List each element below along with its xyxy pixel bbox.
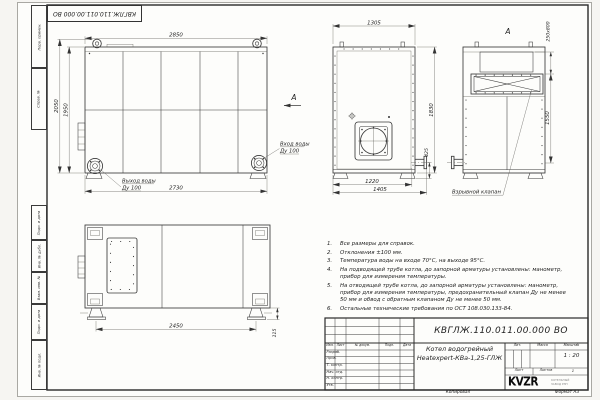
side-view: 1305 1830 1220 1405 425: [333, 20, 437, 195]
inlet-label: Вход воды: [280, 141, 310, 147]
note-number: 3.: [327, 258, 336, 265]
valve-size-dim: 250x800: [546, 21, 552, 41]
note-item: 2.Отклонения ±100 мм.: [327, 250, 567, 257]
doc-number: КВГЛЖ.110.011.00.000 ВО: [414, 322, 588, 341]
margin-field-label: Подп. и дата: [37, 310, 41, 334]
outlet-size-label: Ду 100: [121, 186, 142, 192]
rear-foot-dim: 115: [272, 329, 278, 338]
inspection-door: [107, 238, 137, 293]
product-name-line2: Heatexpert-КВа-1,25-ГЛЖ: [414, 355, 505, 362]
factory-logo: KVZR: [508, 376, 538, 389]
rear-width-dim: 2450: [169, 324, 183, 330]
outlet-label: Выход воды: [122, 178, 156, 184]
water-inlet-flange: [251, 155, 266, 170]
row-prov: Пров.: [327, 357, 337, 361]
footer-copied: Копировал: [428, 391, 488, 396]
lifting-lug-right: [253, 39, 262, 48]
margin-field-label: Взам. инв. №: [37, 276, 41, 300]
note-item: 6.Остальные технические требования по ОС…: [327, 306, 567, 313]
water-outlet-flange: [87, 158, 102, 173]
inlet-size-label: Ду 100: [279, 149, 300, 155]
note-text: Температура воды на входе 70°С, на выход…: [336, 258, 567, 265]
col-podp: Подп.: [379, 344, 400, 347]
side-width-top-dim: 1305: [367, 20, 381, 26]
sheets-label: Листов: [533, 369, 559, 373]
front-width-bottom-dim: 2730: [169, 186, 183, 192]
lifting-lug-left: [93, 39, 102, 48]
sheet-label: Лист: [505, 369, 533, 373]
ladder-bracket: [78, 123, 85, 150]
row-razrab: Разраб.: [327, 351, 341, 355]
margin-field-sprav-no: Справ. №: [31, 68, 47, 130]
explosion-valve: [471, 74, 543, 94]
margin-field-label: Справ. №: [37, 90, 41, 107]
drawing-sheet: 2850 2050 1950 2730 Выход воды Ду 100 Вх…: [0, 0, 600, 400]
note-text: На подводящей трубе котла, до запорной а…: [336, 267, 567, 281]
margin-field-label: Инв. № дубл.: [37, 244, 41, 269]
note-text: Все размеры для справок.: [336, 241, 567, 248]
note-text: Остальные технические требования по ОСТ …: [336, 306, 567, 313]
row-nachotd: Нач. отд.: [327, 371, 344, 375]
footer-format: Формат А3: [542, 391, 592, 396]
section-arrow-label: А: [290, 93, 296, 102]
explosion-valve-callout: Взрывной клапан: [452, 190, 501, 196]
sheets-value: 1: [560, 369, 586, 373]
side-width-inner-dim: 1220: [365, 179, 379, 185]
note-item: 5.На отводящей трубе котла, до запорной …: [327, 283, 567, 304]
col-data: Дата: [400, 344, 414, 347]
side-pipe-dim: 425: [424, 148, 430, 157]
front-view: 2850 2050 1950 2730 Выход воды Ду 100 Вх…: [54, 33, 310, 194]
side-height-dim: 1830: [429, 103, 435, 117]
front-height-inner-dim: 1950: [63, 103, 69, 117]
mass-label: Масса: [530, 344, 555, 348]
margin-field-vzam-inv: Взам. инв. №: [31, 272, 47, 304]
margin-field-podp-data-2: Подп. и дата: [31, 304, 47, 340]
view-a: А: [447, 21, 554, 195]
row-nkontr: Н. контр.: [327, 377, 344, 381]
margin-field-perv-primen: Перв. примен.: [31, 5, 47, 68]
scale-value: 1 : 20: [555, 353, 588, 359]
view-a-height-dim: 1550: [545, 111, 551, 125]
factory-logo-sub2: ЗАВОД РЭП: [551, 383, 568, 387]
scale-label: Масштаб: [555, 344, 588, 348]
product-name-line1: Котел водогрейный: [414, 346, 505, 353]
rear-view: 2450 115: [78, 225, 280, 337]
row-utv: Утв.: [327, 384, 334, 388]
top-stamp-text: КВГЛЖ.110.011.00.000 ВО: [53, 10, 136, 17]
col-izm: Изм.: [325, 344, 335, 347]
burner-flange: [355, 122, 392, 160]
col-list: Лист: [335, 344, 346, 347]
margin-field-inv-podl: Инв. № подл.: [31, 340, 47, 390]
note-number: 4.: [327, 267, 336, 281]
note-number: 2.: [327, 250, 336, 257]
view-a-pipe-stub: [447, 156, 467, 168]
technical-notes: 1.Все размеры для справок. 2.Отклонения …: [327, 241, 567, 314]
row-tkontr: Т. контр.: [327, 364, 343, 368]
note-item: 4.На подводящей трубе котла, до запорной…: [327, 267, 567, 281]
col-docnum: № докум.: [346, 344, 379, 347]
margin-field-label: Подп. и дата: [37, 210, 41, 234]
note-number: 5.: [327, 283, 336, 304]
margin-field-inv-dubl: Инв. № дубл.: [31, 240, 47, 272]
note-item: 3.Температура воды на входе 70°С, на вых…: [327, 258, 567, 265]
view-a-label: А: [504, 27, 510, 36]
note-number: 1.: [327, 241, 336, 248]
front-height-outer-dim: 2050: [54, 99, 60, 113]
note-text: Отклонения ±100 мм.: [336, 250, 567, 257]
top-stamp: КВГЛЖ.110.011.00.000 ВО: [47, 5, 142, 22]
front-width-top-dim: 2850: [169, 33, 183, 39]
margin-field-label: Инв. № подл.: [37, 353, 41, 378]
margin-field-podp-data-1: Подп. и дата: [31, 205, 47, 240]
note-number: 6.: [327, 306, 336, 313]
note-text: На отводящей трубе котла, до запорной ар…: [336, 283, 567, 304]
margin-field-label: Перв. примен.: [37, 23, 41, 50]
note-item: 1.Все размеры для справок.: [327, 241, 567, 248]
lit-label: Лит.: [505, 344, 530, 348]
side-width-outer-dim: 1405: [373, 187, 387, 193]
